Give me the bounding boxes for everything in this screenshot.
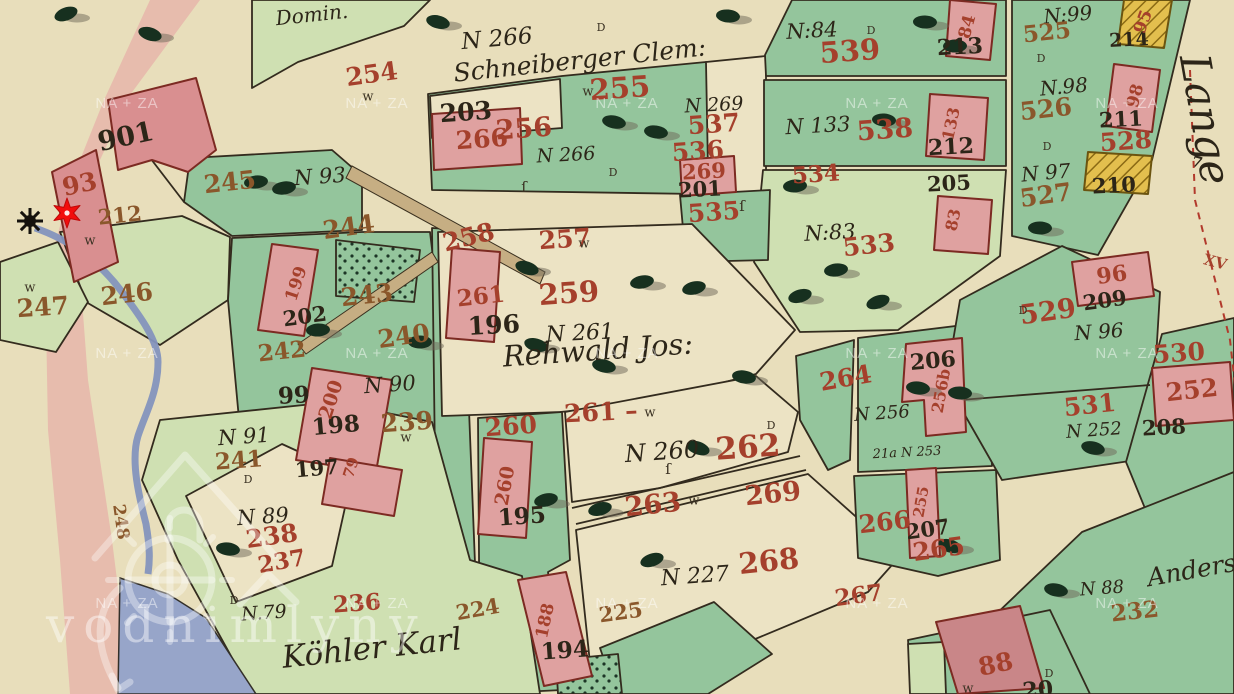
parcel-number-label: 262 [714,427,781,467]
parcel-number-label: 263 [623,487,682,524]
watermark-tile: NA + ZA [95,95,158,112]
parcel-number-label: D [1045,667,1054,680]
cadastral-map-canvas[interactable]: Domin.Schneiberger Clem:Rehwald Jos:Köhl… [0,0,1234,694]
parcel-number-label: 539 [818,32,881,70]
parcel-number-label: D [1019,304,1028,317]
parcel-number-label: w [578,237,589,252]
parcel-number-label: 535 [687,196,741,229]
parcel-number-label: 528 [1099,125,1153,158]
parcel-number-label: D [867,24,876,37]
parcel-number-label: 245 [202,165,257,199]
parcel-number-label: D [609,166,618,179]
parcel-number-label: 526 [1018,92,1073,126]
owner-name-label: N 256 [852,401,910,426]
parcel-number-label: w [644,406,655,421]
owner-name-label: N 93 [292,163,346,191]
watermark-tile: NA + ZA [1095,345,1158,362]
owner-name-label: N 227 [659,562,730,592]
parcel-number-label: 266 [455,123,509,156]
watermark-tile: NA + ZA [345,95,408,112]
owner-name-label: N 260 [623,435,700,468]
watermark-tile: NA + ZA [345,595,408,612]
owner-name-label: N 90 [362,371,416,399]
parcel-number-label: 246 [99,277,154,311]
parcel-number-label: 266 [857,505,912,539]
parcel-number-label: 531 [1062,388,1117,422]
parcel-number-label: 537 [687,108,741,141]
parcel-number-label: 534 [791,159,841,189]
parcel-number-label: 259 [537,274,600,312]
parcel-number-label: D [1043,140,1052,153]
parcel-number-label: w [400,431,411,446]
parcel-number-label: 269 [743,476,802,513]
watermark-tile: NA + ZA [595,595,658,612]
owner-name-label: N 261 [544,319,614,348]
parcel-number-label: 241 [214,445,264,475]
parcel-number-label: 205 [926,169,971,196]
parcel-number-label: 261 [456,281,507,313]
parcel-number-label: 261 – [563,396,638,429]
owner-name-label: N.79 [239,600,287,625]
parcel-polygon [908,642,946,694]
parcel-number-label: 268 [737,541,801,581]
parcel-number-label: 252 [1164,373,1219,407]
watermark-tile: NA + ZA [345,345,408,362]
map-viewer: Domin.Schneiberger Clem:Rehwald Jos:Köhl… [0,0,1234,694]
watermark-tile: NA + ZA [595,345,658,362]
parcel-number-label: 530 [1152,337,1206,370]
parcel-number-label: 533 [841,228,896,262]
parcel-number-label: 212 [97,200,143,229]
parcel-number-label: D [597,21,606,34]
parcel-number-label: w [84,234,95,249]
parcel-number-label: 247 [16,291,70,324]
watermark-tile: NA + ZA [1095,95,1158,112]
parcel-number-label: D [244,473,253,486]
parcel-number-label: D [767,419,776,432]
parcel-number-label: 260 [484,410,538,443]
parcel-number-label: 96 [1095,260,1129,290]
parcel-number-label: w [24,281,35,296]
owner-name-label: N 96 [1072,318,1124,345]
parcel-number-label: D [1037,52,1046,65]
owner-name-label: N 133 [784,112,851,139]
parcel-number-label: w [962,682,973,694]
parcel-number-label: 197 [294,454,340,483]
parcel-number-label: 525 [1022,17,1073,49]
parcel-number-label: 208 [1141,413,1186,440]
parcel-number-label: 196 [467,309,521,341]
parcel-number-label: w [688,494,699,509]
watermark-tile: NA + ZA [1095,595,1158,612]
parcel-number-label: 538 [856,113,914,148]
owner-name-label: N 266 [535,142,596,167]
mill-wheel-symbol [17,208,43,234]
watermark-tile: NA + ZA [845,345,908,362]
parcel-number-label: 243 [339,278,394,312]
parcel-number-label: 99 [277,381,310,410]
owner-name-label: N 252 [1064,418,1122,443]
watermark-tile: NA + ZA [845,595,908,612]
watermark-tile: NA + ZA [845,95,908,112]
parcel-number-label: w [582,85,593,100]
parcel-number-label: 242 [257,336,308,368]
parcel-number-label: 210 [1091,171,1136,198]
watermark-tile: NA + ZA [595,95,658,112]
watermark-tile: NA + ZA [95,345,158,362]
